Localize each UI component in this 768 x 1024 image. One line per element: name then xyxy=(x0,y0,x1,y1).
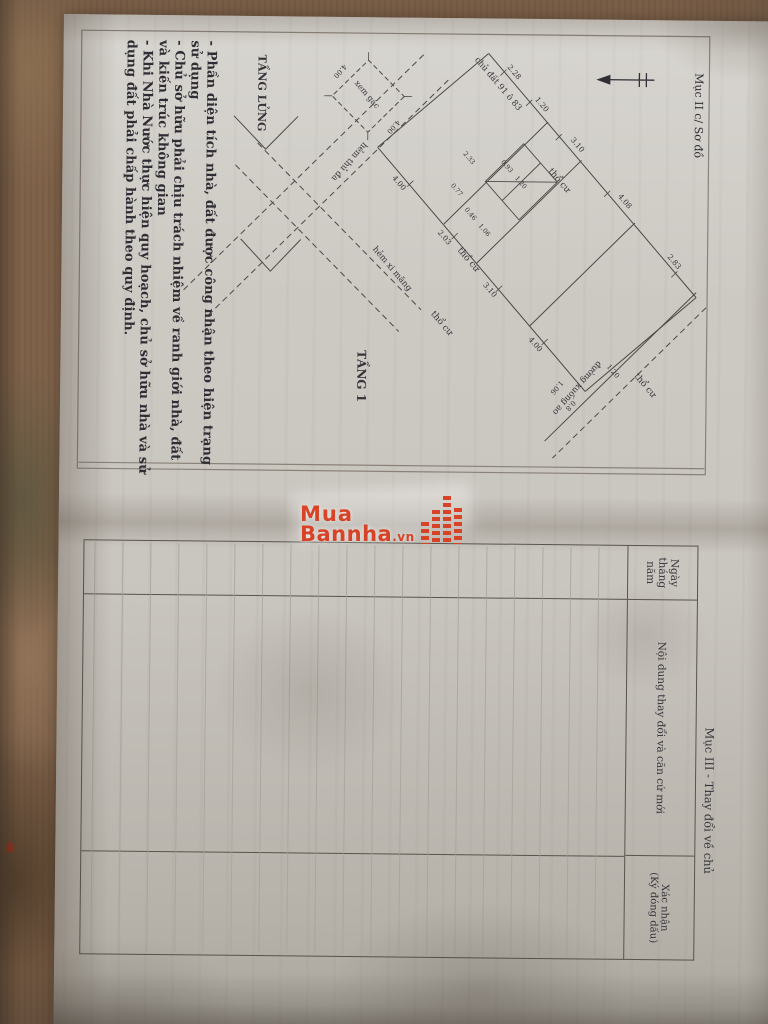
header-confirm-line1: Xác nhận xyxy=(659,884,670,931)
plan-label: hẻm thủ đa xyxy=(329,140,370,184)
plan-label: 1.20 xyxy=(533,95,551,114)
column-separator xyxy=(81,850,624,857)
plan-label: 2.28 xyxy=(506,63,524,82)
ruled-line xyxy=(286,544,291,953)
ruled-line xyxy=(118,543,123,952)
changes-table: Ngày tháng năm Nội dung thay đổi và căn … xyxy=(79,539,698,960)
note-line: - Phần diện tích nhà, đất được công nhận… xyxy=(183,40,219,476)
watermark-line2-text: Bannha xyxy=(300,522,392,546)
ruled-line xyxy=(146,543,151,952)
watermark-text: Mua Bannha.vn xyxy=(300,505,415,544)
boundary-break-marks xyxy=(232,116,302,272)
ruled-line xyxy=(174,543,179,952)
ruled-line xyxy=(314,545,319,954)
ruled-line xyxy=(538,547,543,956)
header-cell-confirm: Xác nhận (Ký đóng dấu) xyxy=(624,856,694,960)
diagram-section-title: Mục II c/ Sơ đồ xyxy=(692,73,706,158)
plan-label: 2.33 xyxy=(461,150,476,166)
plan-label: 4.08 xyxy=(616,192,634,211)
plan-label: 4.00 xyxy=(527,335,545,354)
column-separator xyxy=(84,593,627,600)
plan-label: 1.06 xyxy=(548,379,565,396)
ruled-line xyxy=(454,546,459,955)
building-bar xyxy=(421,522,429,544)
plan-label: 4.00 xyxy=(332,63,348,80)
building-bar xyxy=(454,508,462,544)
plan-label: 4.00 xyxy=(385,118,401,135)
ruled-line xyxy=(90,542,95,951)
plan-label: 1.06 xyxy=(477,222,492,238)
ruled-line xyxy=(230,544,235,953)
ruled-line xyxy=(482,546,487,955)
plan-label: thổ cư xyxy=(455,244,483,274)
plan-label: 2.03 xyxy=(436,228,454,247)
table-section-title: Mục III - Thay đổi về chủ xyxy=(700,631,718,971)
plan-label: 3.10 xyxy=(481,281,499,300)
ruled-line xyxy=(370,545,375,954)
note-line: - Chủ sở hữu phải chịu trách nhiệm về ra… xyxy=(151,40,187,476)
watermark-suffix: .vn xyxy=(392,530,414,544)
building-bars-icon xyxy=(421,492,462,544)
header-cell-date: Ngày tháng năm xyxy=(628,546,698,601)
notes-block: - Phần diện tích nhà, đất được công nhận… xyxy=(118,40,219,477)
ruled-line xyxy=(258,544,263,953)
ruled-line xyxy=(202,544,207,953)
plan-label: hẻm xi măng xyxy=(370,244,415,294)
table-header-row: Ngày tháng năm Nội dung thay đổi và căn … xyxy=(623,546,697,960)
background-speck xyxy=(6,842,14,853)
note-line: - Khi Nhà Nước thực hiện quy hoạch, chủ … xyxy=(119,40,155,476)
ruled-line xyxy=(510,547,515,956)
plan-label: 0.77 xyxy=(449,182,464,198)
north-arrow-icon xyxy=(596,73,654,88)
ruled-line xyxy=(594,548,599,957)
header-cell-content: Nội dung thay đổi và căn cứ mới xyxy=(625,600,697,857)
plan-text-layer: chủ đất 91 ô 83thổ cưthổ cưthổ cưthổ cưh… xyxy=(252,52,686,418)
plan-label: thổ cư xyxy=(428,308,456,338)
plan-label: 0.93 xyxy=(499,158,514,174)
plan-label: 0.46 xyxy=(463,206,478,222)
watermark-line2: Bannha.vn xyxy=(300,525,415,544)
plan-label: TẦNG 1 xyxy=(354,350,372,402)
watermark: Mua Bannha.vn xyxy=(300,482,470,544)
building-bar xyxy=(432,510,440,544)
building-bar xyxy=(443,496,451,544)
plan-label: 4.00 xyxy=(390,174,408,193)
plan-label: 1.20 xyxy=(605,363,621,380)
ruled-line xyxy=(398,546,403,955)
plan-label: xem gác xyxy=(353,79,382,111)
ruled-line xyxy=(342,545,347,954)
header-confirm-line2: (Ký đóng dấu) xyxy=(648,872,660,943)
table-body xyxy=(80,540,627,959)
photo-frame: Mục II c/ Sơ đồ chủ đất 91 ô 83thổ cưthổ… xyxy=(0,0,768,1024)
ruled-line xyxy=(426,546,431,955)
plan-label: 2.83 xyxy=(666,252,684,271)
plan-label: chủ đất 91 ô 83 xyxy=(472,55,524,113)
ruled-line xyxy=(566,547,571,956)
plan-label: thổ cư xyxy=(632,370,660,400)
plan-label: TẦNG LỬNG xyxy=(255,55,271,132)
